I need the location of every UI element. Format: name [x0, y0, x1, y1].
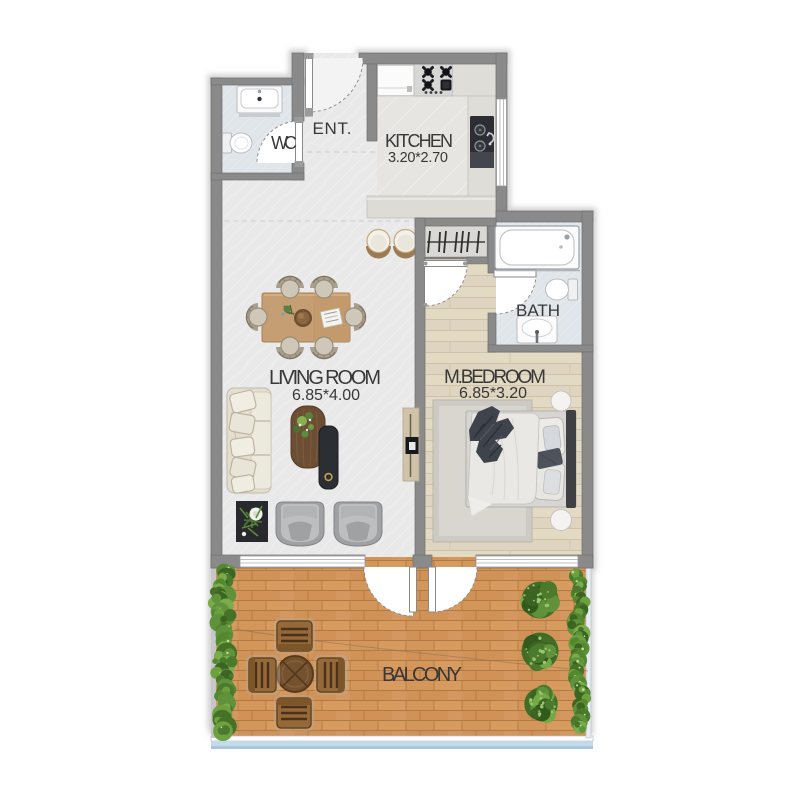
- svg-text:BALCONY: BALCONY: [382, 664, 462, 686]
- svg-text:KITCHEN: KITCHEN: [385, 131, 453, 151]
- svg-text:LIVING ROOM: LIVING ROOM: [269, 367, 381, 389]
- svg-text:3.20*2.70: 3.20*2.70: [388, 150, 448, 166]
- svg-text:WC: WC: [271, 133, 297, 153]
- svg-text:BATH: BATH: [516, 301, 560, 320]
- svg-text:6.85*4.00: 6.85*4.00: [292, 387, 360, 404]
- svg-text:ENT.: ENT.: [313, 119, 352, 138]
- svg-text:6.85*3.20: 6.85*3.20: [459, 385, 527, 402]
